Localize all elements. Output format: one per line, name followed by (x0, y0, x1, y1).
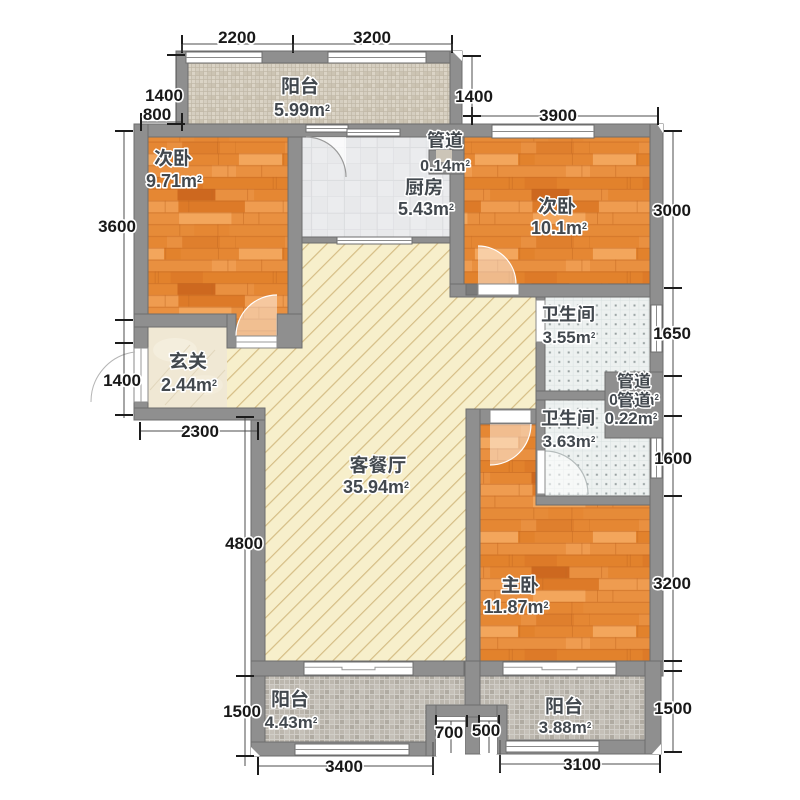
svg-text:0.14m2: 0.14m2 (420, 158, 470, 175)
svg-text:35.94m2: 35.94m2 (343, 477, 409, 497)
svg-text:0.22m2: 0.22m2 (605, 409, 658, 428)
svg-text:1650: 1650 (653, 324, 691, 343)
svg-text:500: 500 (472, 721, 500, 740)
svg-text:2.44m2: 2.44m2 (161, 375, 217, 395)
svg-text:3.55m2: 3.55m2 (543, 328, 596, 347)
svg-text:3400: 3400 (325, 757, 363, 776)
svg-text:2200: 2200 (218, 28, 256, 47)
svg-text:1500: 1500 (223, 702, 261, 721)
svg-text:700: 700 (435, 723, 463, 742)
svg-text:5.43m2: 5.43m2 (398, 199, 454, 219)
svg-text:1400: 1400 (103, 371, 141, 390)
svg-text:3200: 3200 (653, 574, 691, 593)
svg-text:11.87m2: 11.87m2 (483, 597, 548, 617)
svg-text:1500: 1500 (654, 699, 692, 718)
svg-text:3100: 3100 (563, 755, 601, 774)
svg-text:1600: 1600 (654, 449, 692, 468)
svg-text:3600: 3600 (98, 217, 136, 236)
svg-text:10.1m2: 10.1m2 (531, 218, 587, 238)
svg-text:4800: 4800 (225, 534, 263, 553)
svg-text:3.63m2: 3.63m2 (543, 432, 596, 451)
svg-text:5.99m2: 5.99m2 (274, 100, 330, 120)
svg-text:9.71m2: 9.71m2 (146, 171, 202, 191)
svg-text:1400: 1400 (145, 86, 183, 105)
svg-text:3900: 3900 (539, 106, 577, 125)
svg-text:3.88m2: 3.88m2 (539, 718, 592, 737)
svg-text:4.43m2: 4.43m2 (265, 713, 318, 732)
svg-text:1400: 1400 (455, 87, 493, 106)
svg-text:3200: 3200 (353, 28, 391, 47)
svg-text:2300: 2300 (181, 422, 219, 441)
svg-text:3000: 3000 (653, 201, 691, 220)
svg-text:800: 800 (143, 105, 171, 124)
